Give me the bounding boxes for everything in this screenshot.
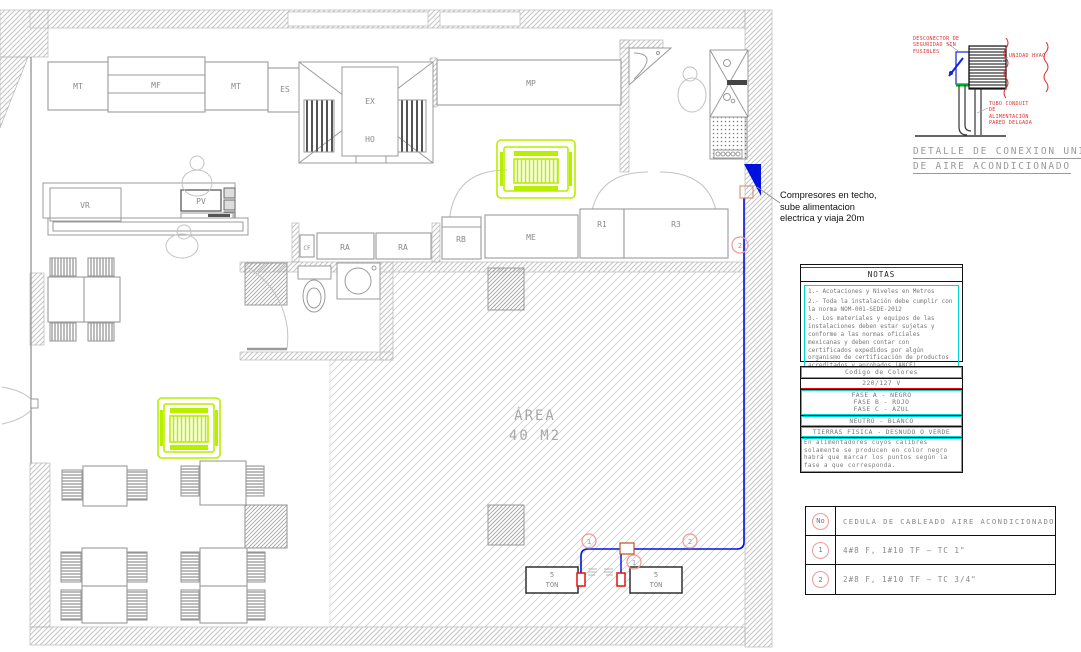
cable-schedule-table: No CEDULA DE CABLEADO AIRE ACONDICIONADO… xyxy=(805,506,1056,595)
neutral-row: NEUTRO - BLANCO xyxy=(801,415,962,426)
schedule-header-title: CEDULA DE CABLEADO AIRE ACONDICIONADO xyxy=(836,507,1055,536)
prep-station xyxy=(710,50,748,117)
phase-b: FASE B - ROJO xyxy=(801,399,962,406)
label-mt2: MT xyxy=(231,82,241,91)
note-item: 2.- Toda la instalación debe cumplir con… xyxy=(808,298,955,314)
note-item: 3.- Los materiales y equipos de las inst… xyxy=(808,315,955,370)
detail-label-conduit: TUBO CONDUIT DE ALIMENTACIÓN PARED DELGA… xyxy=(989,101,1037,126)
middle-counters xyxy=(300,209,728,259)
label-vr: VR xyxy=(80,201,90,210)
label-ra1: RA xyxy=(340,243,350,252)
label-r3: R3 xyxy=(671,220,681,229)
service-counter xyxy=(43,183,248,235)
schedule-row-spec: 2#8 F, 1#10 TF – TC 3/4" xyxy=(836,565,1055,594)
dining-tables xyxy=(48,258,287,623)
keynote-circle: 1 xyxy=(812,542,829,559)
disconnect-switch xyxy=(617,573,625,586)
notes-panel: NOTAS 1.- Acotaciones y Niveles en Metro… xyxy=(800,264,963,362)
label-pv: PV xyxy=(196,197,206,206)
color-code-voltage: 220/127 V xyxy=(801,378,962,389)
detail-title-line1: DETALLE DE CONEXION UNIDAD xyxy=(913,146,1081,159)
leader-line xyxy=(977,108,988,113)
label-mt1: MT xyxy=(73,82,83,91)
compressor-annotation: Compresores en techo, sube alimentacion … xyxy=(780,190,888,225)
keynote-circle: 2 xyxy=(812,571,829,588)
unit1-tonnage: 5 xyxy=(550,571,554,579)
note-item: 1.- Acotaciones y Niveles en Metros xyxy=(808,288,955,296)
person-figure xyxy=(678,67,706,112)
grill-equipment xyxy=(710,117,747,159)
color-code-title: Codigo de Colores xyxy=(801,367,962,378)
label-mp: MP xyxy=(526,79,536,88)
phase-list: FASE A - NEGRO FASE B - ROJO FASE C - AZ… xyxy=(801,389,962,415)
unit1-tonnage-unit: TON xyxy=(546,581,559,589)
label-r1: R1 xyxy=(597,220,607,229)
area-label-line2: 40 M2 xyxy=(509,428,561,444)
corner-sink xyxy=(629,48,671,85)
color-code-note: En alimentadores cuyos calibres solament… xyxy=(801,437,962,472)
label-mf: MF xyxy=(151,81,161,90)
label-ho: HO xyxy=(365,135,375,144)
ground-row: TIERRAS FISICA - DESNUDO O VERDE xyxy=(801,426,962,437)
junction-box xyxy=(620,543,634,554)
label-rb: RB xyxy=(456,235,466,244)
detail-label-disconnector: DESCONECTOR DE SEGURIDAD SIN FUSIBLES xyxy=(913,36,963,55)
keynote-1a: 1 xyxy=(587,538,591,546)
hood-equipment xyxy=(299,62,433,163)
kitchen-counters xyxy=(48,57,302,112)
detail-title: DETALLE DE CONEXION UNIDAD DE AIRE ACOND… xyxy=(913,146,1081,176)
column xyxy=(488,505,524,545)
unit2-tonnage-unit: TON xyxy=(650,581,663,589)
safety-disconnect-icon xyxy=(956,52,969,84)
bathroom xyxy=(245,263,380,349)
color-code-panel: Codigo de Colores 220/127 V FASE A - NEG… xyxy=(800,366,963,473)
label-es: ES xyxy=(280,85,290,94)
unit2-tonnage: 5 xyxy=(654,571,658,579)
schedule-row-no: 1 xyxy=(806,536,836,565)
label-ra2: RA xyxy=(398,243,408,252)
schedule-row-spec: 4#8 F, 1#10 TF – TC 1" xyxy=(836,536,1055,565)
cassette-ac-icon xyxy=(497,140,575,198)
column xyxy=(488,268,524,310)
keynote-2b: 2 xyxy=(738,242,742,250)
label-me: ME xyxy=(526,233,536,242)
keynote-2a: 2 xyxy=(688,538,692,546)
cassette-ac-icon xyxy=(158,398,220,458)
disconnect-switch xyxy=(577,573,585,586)
phase-a: FASE A - NEGRO xyxy=(801,392,962,399)
phase-c: FASE C - AZUL xyxy=(801,406,962,413)
keynote-1b: 1 xyxy=(632,559,636,567)
area-label-line1: ÁREA xyxy=(514,407,556,424)
no-header-circle: No xyxy=(812,513,829,530)
detail-label-unit: UNIDAD HVAC xyxy=(1009,53,1051,59)
detail-title-line2: DE AIRE ACONDICIONADO xyxy=(913,161,1071,174)
schedule-row-no: 2 xyxy=(806,565,836,594)
label-cf: CF xyxy=(303,245,311,252)
label-ex: EX xyxy=(365,97,375,106)
hvac-unit-fins-icon xyxy=(969,46,1006,89)
cad-floorplan-screenshot: MT MF MT ES EX HO MP VR PV CF RA RA RB M… xyxy=(0,0,1081,652)
notes-title: NOTAS xyxy=(801,267,962,282)
schedule-header-no: No xyxy=(806,507,836,536)
